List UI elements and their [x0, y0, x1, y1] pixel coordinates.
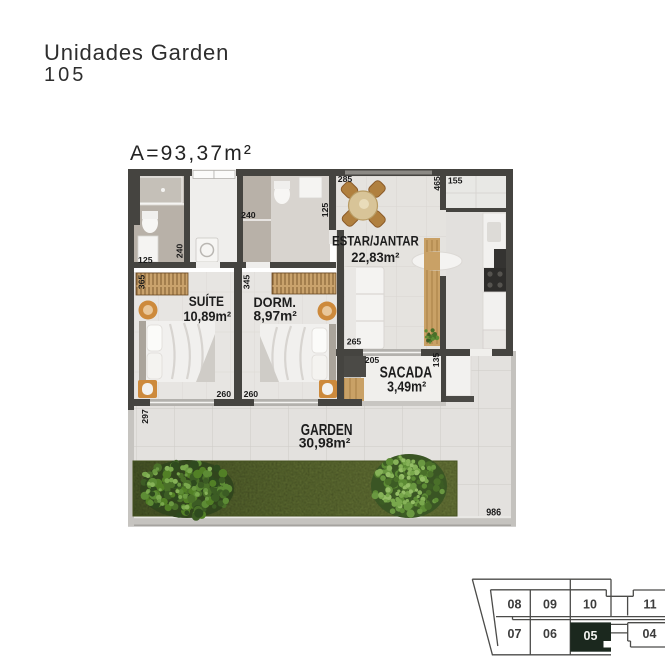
svg-text:08: 08	[508, 598, 522, 612]
svg-text:260: 260	[217, 390, 232, 399]
svg-text:05: 05	[584, 629, 598, 643]
svg-text:11: 11	[643, 598, 656, 612]
svg-text:04: 04	[643, 627, 657, 641]
svg-text:260: 260	[244, 390, 259, 399]
svg-text:22,83m²: 22,83m²	[351, 250, 400, 265]
svg-text:105: 105	[44, 64, 86, 86]
svg-text:06: 06	[543, 627, 557, 641]
svg-text:ESTAR/JANTAR: ESTAR/JANTAR	[332, 234, 419, 250]
svg-text:285: 285	[338, 175, 353, 184]
svg-text:365: 365	[138, 274, 147, 289]
svg-text:125: 125	[138, 256, 153, 265]
svg-text:3,49m²: 3,49m²	[387, 379, 426, 395]
svg-text:297: 297	[141, 409, 150, 424]
svg-text:SUÍTE: SUÍTE	[189, 294, 224, 309]
svg-text:155: 155	[448, 177, 463, 186]
svg-text:125: 125	[321, 202, 330, 217]
svg-text:A=93,37m²: A=93,37m²	[130, 142, 253, 165]
svg-text:345: 345	[243, 274, 252, 289]
svg-text:465: 465	[433, 176, 442, 191]
svg-text:10: 10	[583, 598, 597, 612]
svg-text:205: 205	[365, 356, 380, 365]
svg-text:09: 09	[543, 598, 557, 612]
svg-text:135: 135	[432, 352, 441, 367]
svg-text:240: 240	[241, 211, 256, 220]
svg-text:265: 265	[347, 338, 362, 347]
svg-text:30,98m²: 30,98m²	[299, 435, 351, 451]
svg-text:240: 240	[176, 243, 185, 258]
svg-text:8,97m²: 8,97m²	[254, 309, 298, 324]
svg-text:07: 07	[508, 627, 522, 641]
svg-text:986: 986	[486, 506, 501, 518]
svg-text:Unidades Garden: Unidades Garden	[44, 40, 229, 65]
svg-text:10,89m²: 10,89m²	[183, 309, 231, 324]
